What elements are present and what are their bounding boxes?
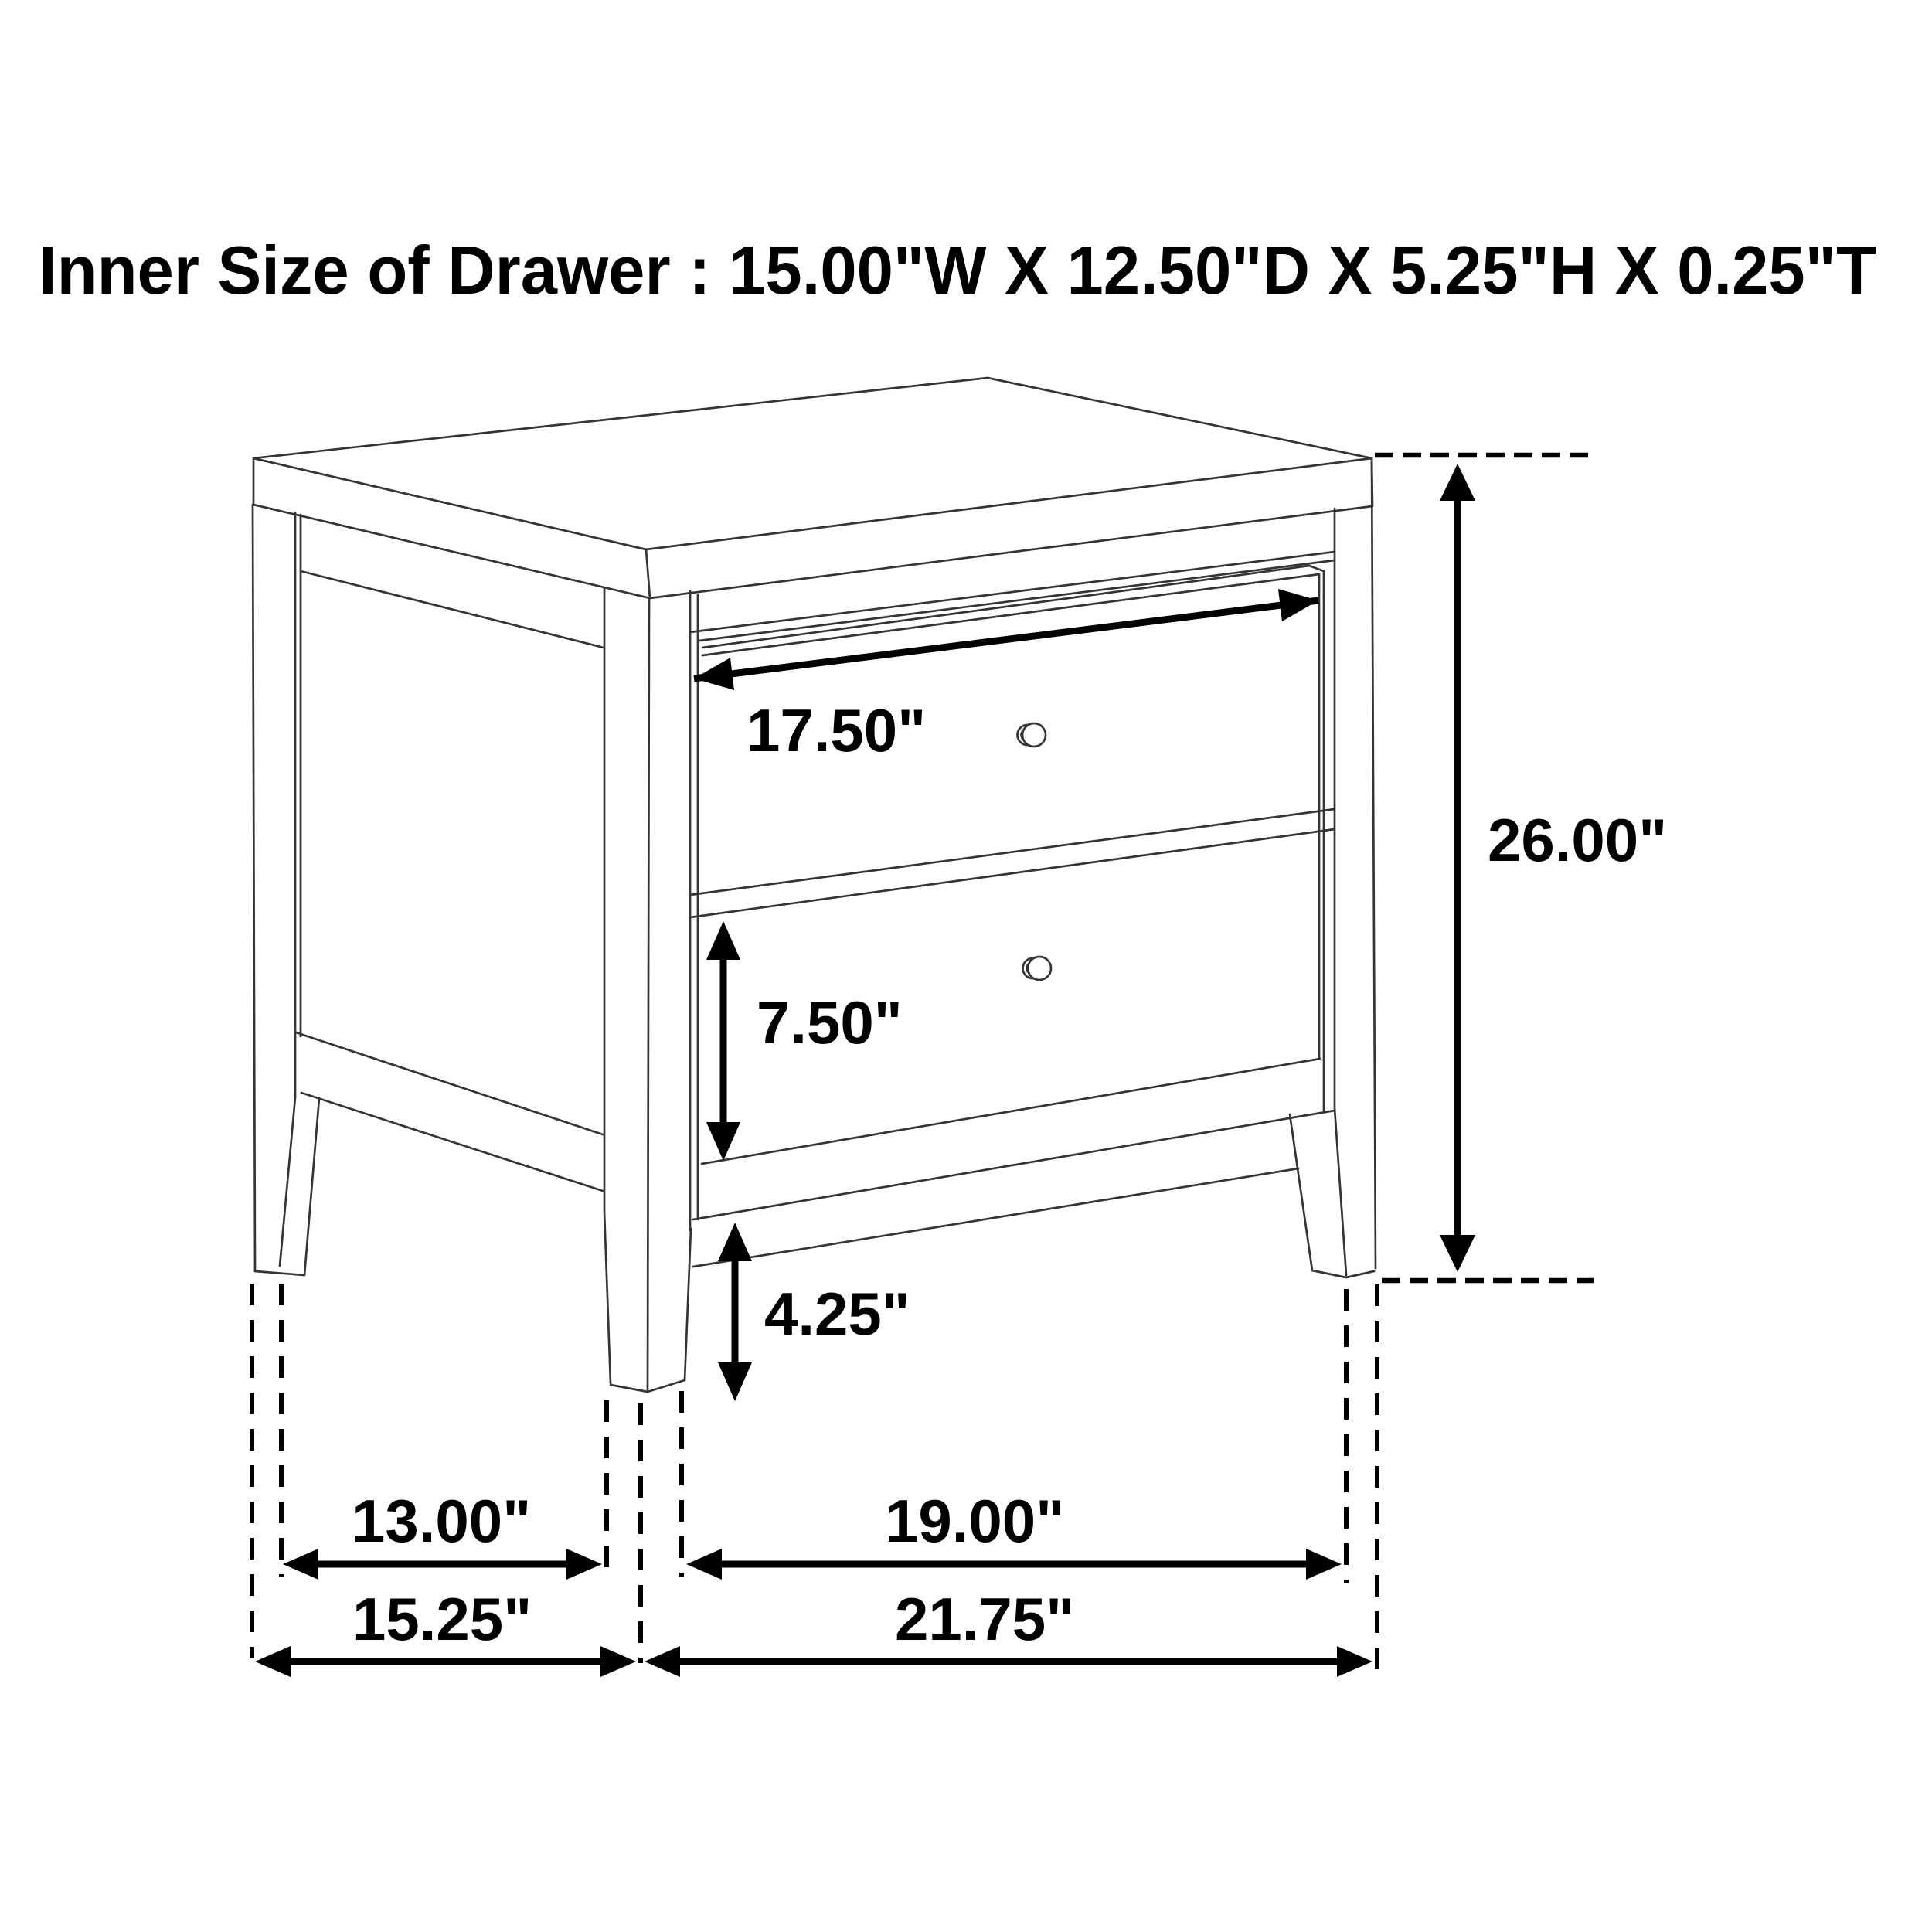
svg-text:4.25": 4.25": [764, 1280, 910, 1348]
svg-text:Inner Size of Drawer : 15.00"W: Inner Size of Drawer : 15.00"W X 12.50"D…: [39, 232, 1876, 308]
svg-text:7.50": 7.50": [757, 988, 903, 1056]
svg-text:26.00": 26.00": [1488, 806, 1667, 874]
svg-text:21.75": 21.75": [895, 1585, 1074, 1653]
svg-text:17.50": 17.50": [747, 696, 926, 764]
svg-text:13.00": 13.00": [352, 1487, 531, 1555]
svg-text:15.25": 15.25": [352, 1585, 532, 1653]
svg-text:19.00": 19.00": [885, 1487, 1064, 1555]
